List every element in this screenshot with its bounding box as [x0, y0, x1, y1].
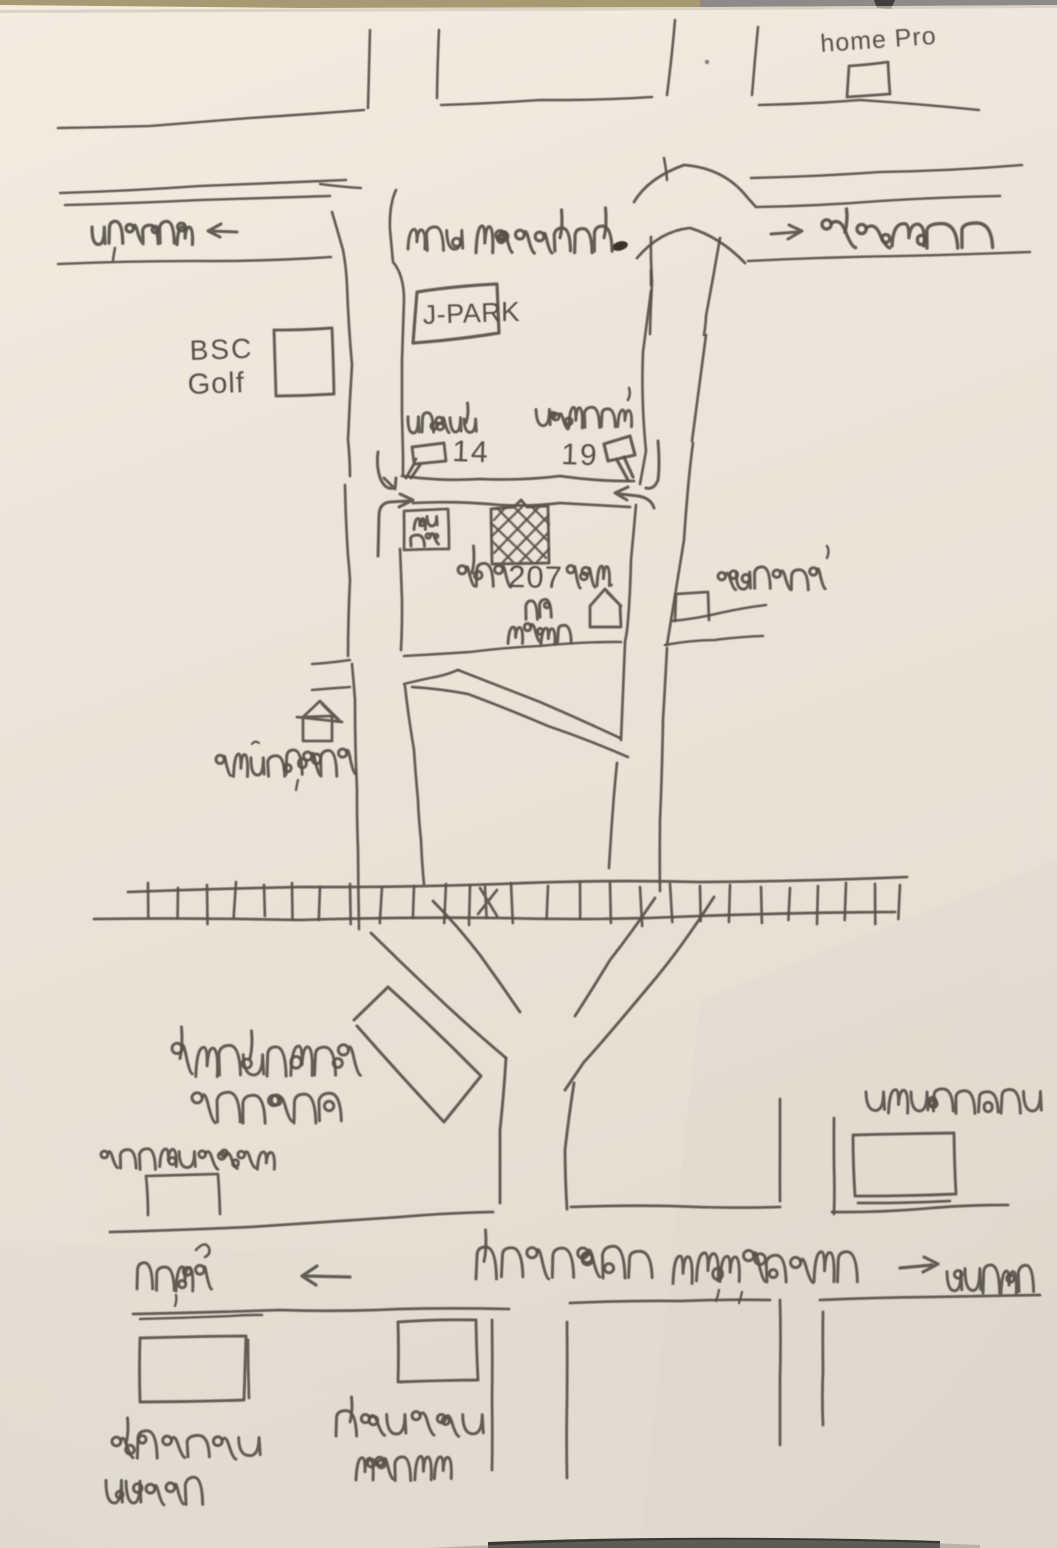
svg-text:K: K — [501, 296, 520, 327]
svg-text:207: 207 — [508, 559, 563, 595]
svg-text:BSC: BSC — [189, 333, 254, 366]
svg-text:J-PAR: J-PAR — [422, 297, 502, 330]
svg-text:Golf: Golf — [187, 367, 245, 401]
svg-text:14: 14 — [452, 435, 491, 469]
svg-text:19: 19 — [561, 438, 600, 472]
